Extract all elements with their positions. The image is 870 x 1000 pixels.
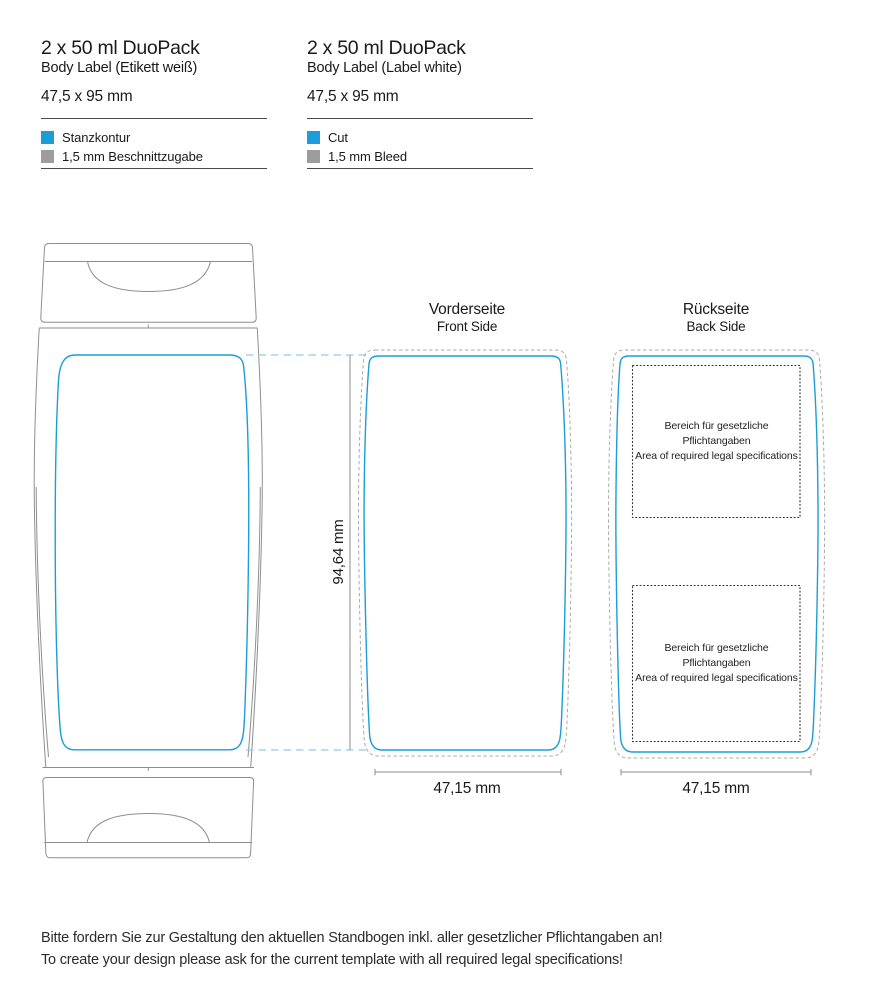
legal-area-text-top: Bereich für gesetzliche Pflichtangaben A… <box>633 366 800 517</box>
bottle-label-cut-contour <box>55 355 249 750</box>
legal-text-en: Area of required legal specifications <box>633 449 800 464</box>
front-side-header: Vorderseite Front Side <box>367 301 567 335</box>
cap-thumb-recess <box>87 814 210 843</box>
bottle-body <box>34 325 262 772</box>
back-side-title-de: Rückseite <box>616 301 816 318</box>
dimension-line-width-back <box>621 769 811 775</box>
legal-text-de: Bereich für gesetzliche Pflichtangaben <box>633 419 800 449</box>
front-label-cut-outline <box>364 356 566 750</box>
footer-note: Bitte fordern Sie zur Gestaltung den akt… <box>41 927 821 971</box>
front-side-title-de: Vorderseite <box>367 301 567 318</box>
legal-text-en: Area of required legal specifications <box>633 671 800 686</box>
back-side-header: Rückseite Back Side <box>616 301 816 335</box>
legal-text-de: Bereich für gesetzliche Pflichtangaben <box>633 641 800 671</box>
legal-area-text-bottom: Bereich für gesetzliche Pflichtangaben A… <box>633 586 800 741</box>
back-side-title-en: Back Side <box>616 319 816 335</box>
cap-thumb-recess <box>88 262 211 292</box>
footer-note-en: To create your design please ask for the… <box>41 949 821 971</box>
front-label <box>358 350 571 775</box>
dimension-line-width-front <box>375 769 561 775</box>
label-template-sheet: 2 x 50 ml DuoPack Body Label (Etikett we… <box>0 0 870 1000</box>
height-dimension-label: 94,64 mm <box>331 462 347 642</box>
front-width-dimension-label: 47,15 mm <box>367 780 567 798</box>
front-side-title-en: Front Side <box>367 319 567 335</box>
back-width-dimension-label: 47,15 mm <box>616 780 816 798</box>
bottle-bottom-cap <box>43 778 254 858</box>
bottle-top-cap <box>41 244 256 323</box>
footer-note-de: Bitte fordern Sie zur Gestaltung den akt… <box>41 927 821 949</box>
front-label-bleed-outline <box>358 350 571 756</box>
